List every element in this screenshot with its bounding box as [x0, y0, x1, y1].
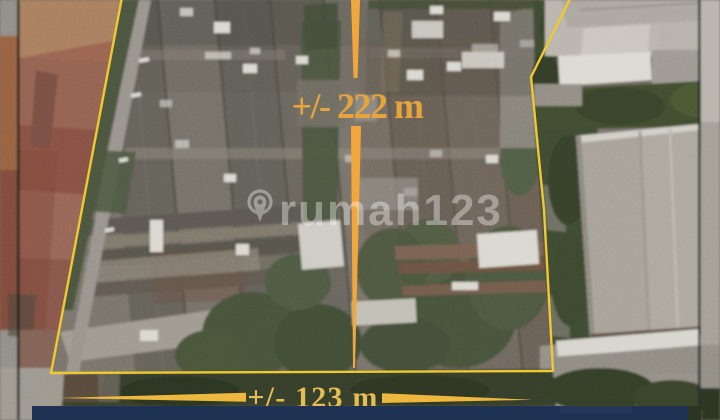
svg-text:+/- 222 m: +/- 222 m [292, 86, 425, 126]
svg-text:rumah123: rumah123 [279, 186, 503, 235]
